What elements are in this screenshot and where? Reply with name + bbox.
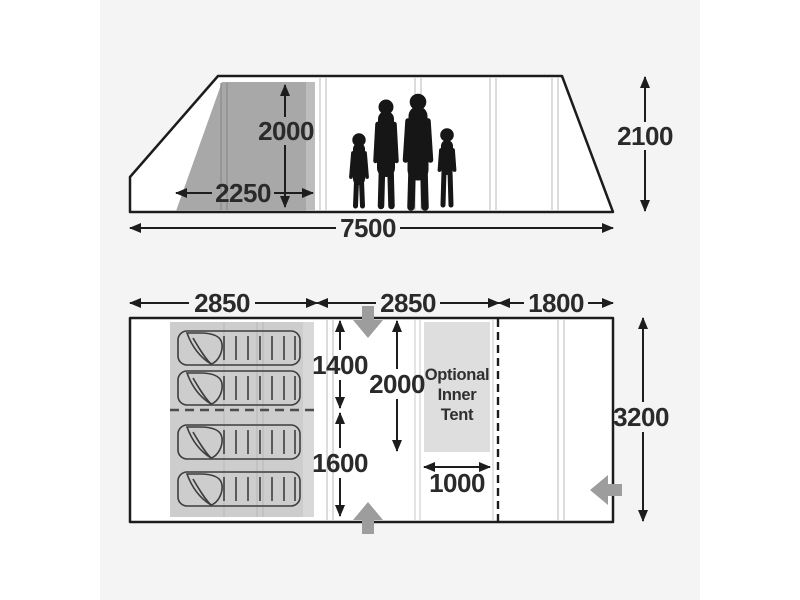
rear-section-label: 1800 xyxy=(528,288,584,318)
bedroom-front-label: 1400 xyxy=(312,350,368,380)
inner-tent-label-line1: Optional xyxy=(425,366,490,384)
living-depth-label: 2000 xyxy=(369,369,425,399)
middle-section-label: 2850 xyxy=(380,288,436,318)
total-length-label: 7500 xyxy=(340,213,396,243)
inner-tent-label-line2: Inner xyxy=(438,386,478,404)
front-section-label: 2850 xyxy=(194,288,250,318)
bedroom-depth-label: 2250 xyxy=(215,178,271,208)
peak-height-label: 2100 xyxy=(617,121,673,151)
optional-inner-tent: Optional Inner Tent xyxy=(424,322,490,452)
tent-width-label: 3200 xyxy=(613,402,669,432)
inner-tent-label-line3: Tent xyxy=(441,406,474,424)
bedroom-rear-label: 1600 xyxy=(312,448,368,478)
bedroom-height-label: 2000 xyxy=(258,116,314,146)
inner-tent-width-label: 1000 xyxy=(429,468,485,498)
bedroom-shade-light-band xyxy=(306,82,315,211)
tent-dimensions-figure: 2000 2250 2100 7500 2850 2850 xyxy=(0,0,800,600)
floor-plan-view: 2850 2850 1800 xyxy=(130,288,669,534)
sleeping-area-shading xyxy=(170,322,314,517)
tent-dimensions-diagram: 2000 2250 2100 7500 2850 2850 xyxy=(0,0,800,600)
dimension-inner-tent-width: 1000 xyxy=(424,467,490,498)
